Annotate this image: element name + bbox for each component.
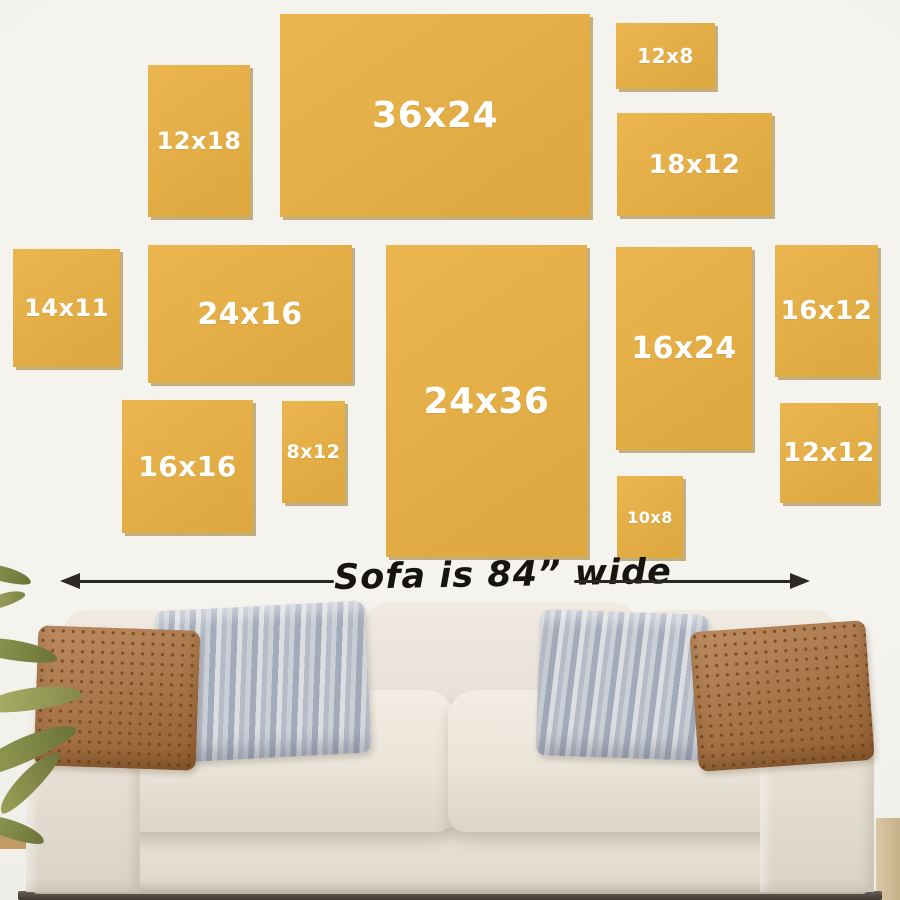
arrow-right-line bbox=[574, 580, 792, 583]
frame-size-label: 12x8 bbox=[637, 44, 694, 68]
frame-16x24: 16x24 bbox=[616, 247, 752, 450]
frame-16x16: 16x16 bbox=[122, 400, 253, 533]
sofa-base bbox=[32, 828, 868, 894]
frame-12x12: 12x12 bbox=[780, 403, 878, 503]
canvas-size-guide-scene: 12x1836x2412x818x1214x1124x1624x3616x241… bbox=[0, 0, 900, 900]
arrow-left-head-icon bbox=[60, 573, 80, 589]
pillow-striped-right bbox=[536, 609, 709, 761]
frame-36x24: 36x24 bbox=[280, 14, 590, 217]
frame-10x8: 10x8 bbox=[617, 476, 683, 558]
frame-12x18: 12x18 bbox=[148, 65, 250, 217]
arrow-right-head-icon bbox=[790, 573, 810, 589]
frame-24x36: 24x36 bbox=[386, 245, 587, 557]
frame-24x16: 24x16 bbox=[148, 245, 352, 383]
frame-size-label: 18x12 bbox=[649, 150, 741, 180]
frame-18x12: 18x12 bbox=[617, 113, 772, 216]
frame-size-label: 8x12 bbox=[287, 441, 341, 463]
frame-size-label: 16x16 bbox=[138, 450, 237, 483]
frame-size-label: 12x12 bbox=[783, 438, 875, 468]
frame-size-label: 14x11 bbox=[24, 294, 109, 322]
frame-size-label: 24x36 bbox=[424, 381, 550, 422]
floor-patch-right bbox=[876, 818, 900, 900]
frame-size-label: 16x24 bbox=[631, 331, 736, 366]
frame-12x8: 12x8 bbox=[616, 23, 715, 89]
frame-size-label: 16x12 bbox=[781, 296, 873, 326]
pillow-rust-right bbox=[689, 620, 874, 772]
frame-size-label: 10x8 bbox=[627, 508, 673, 527]
frame-size-label: 12x18 bbox=[157, 127, 242, 155]
frame-14x11: 14x11 bbox=[13, 249, 120, 367]
frame-size-label: 24x16 bbox=[197, 297, 302, 332]
arrow-left-line bbox=[78, 580, 334, 583]
frame-16x12: 16x12 bbox=[775, 245, 878, 377]
sofa-width-label: Sofa is 84” wide bbox=[334, 553, 672, 597]
frame-8x12: 8x12 bbox=[282, 401, 345, 503]
frame-size-label: 36x24 bbox=[372, 95, 498, 136]
